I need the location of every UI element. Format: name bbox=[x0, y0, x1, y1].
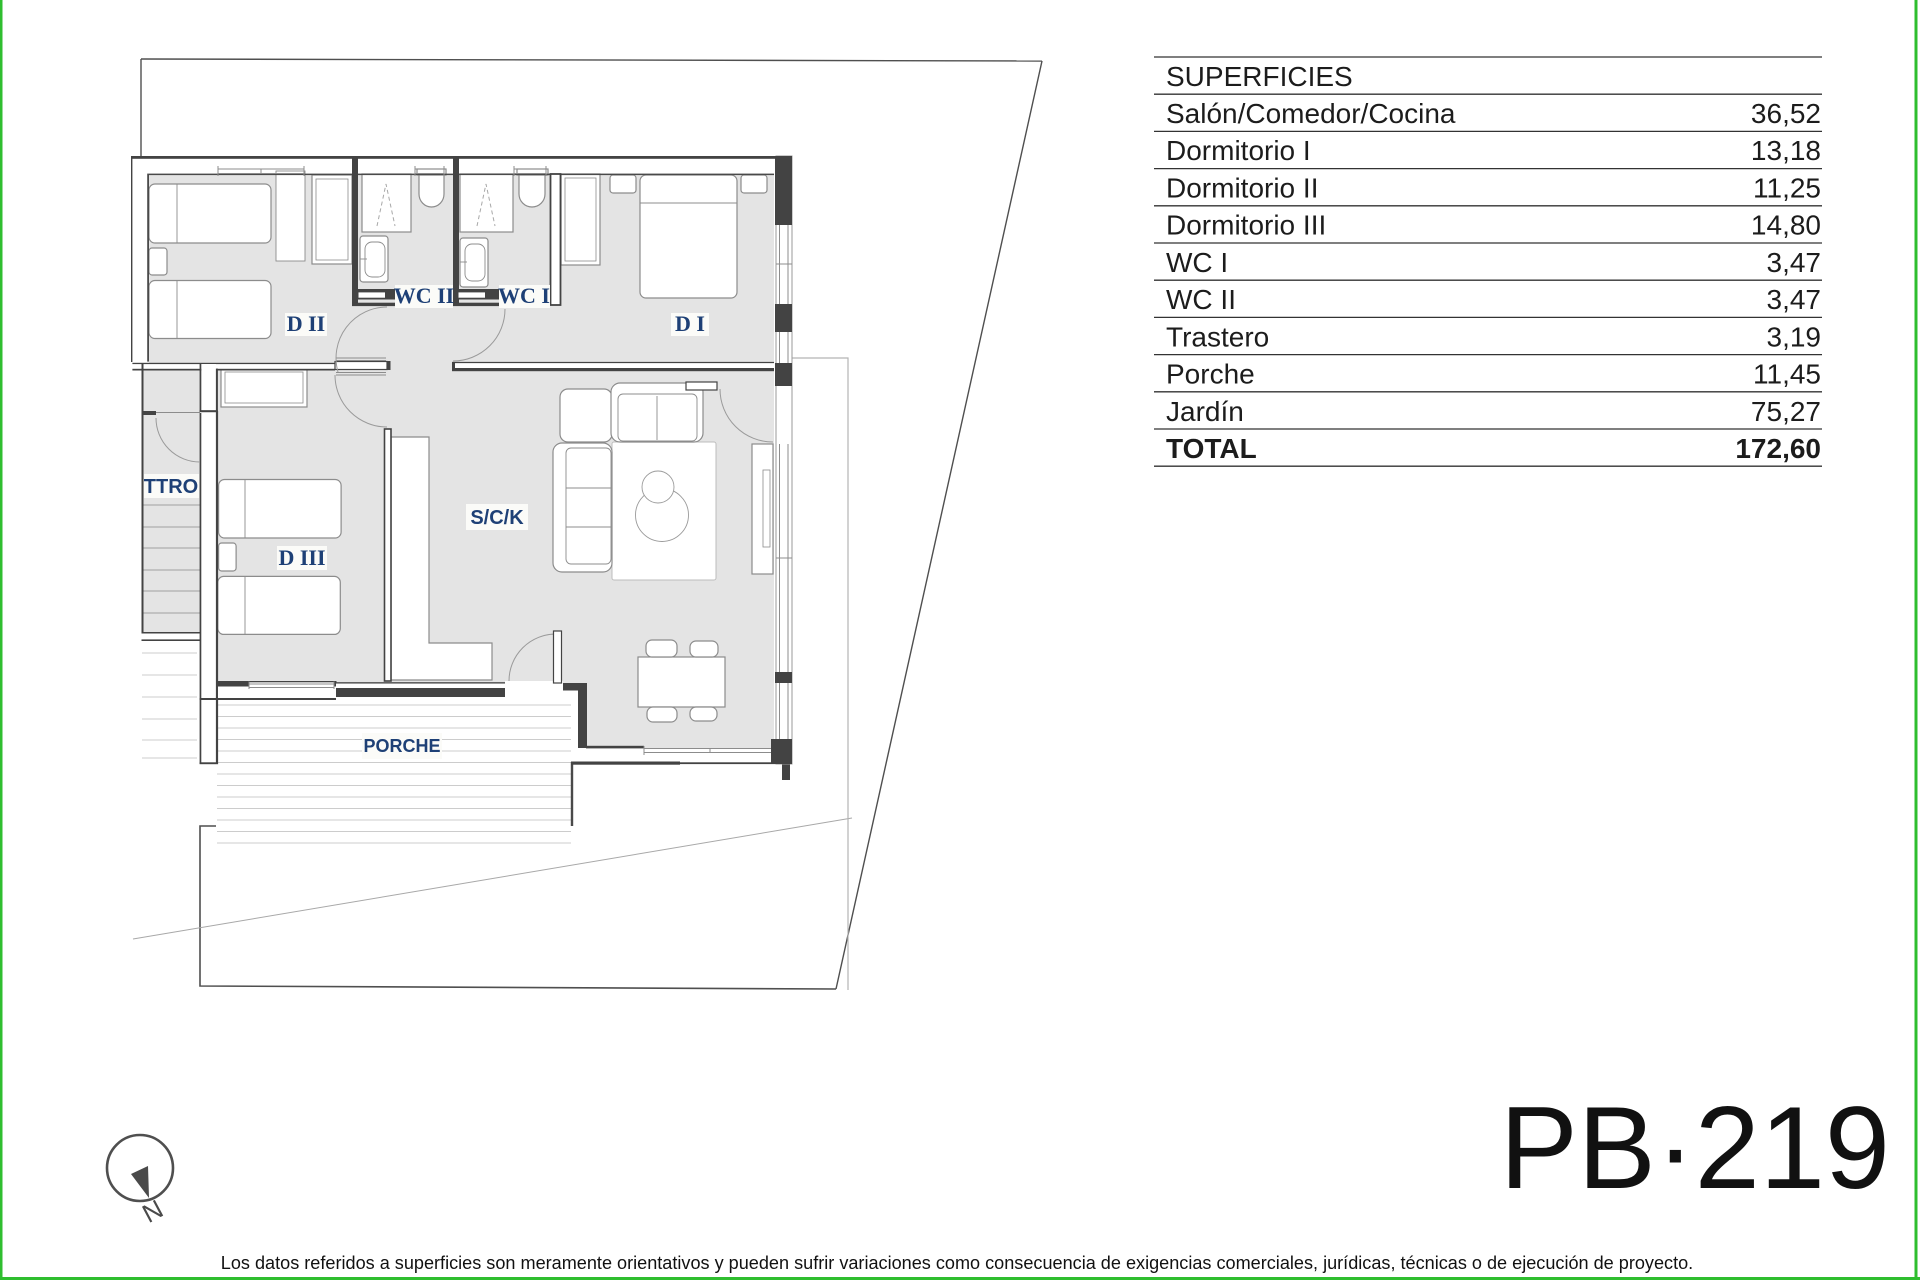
svg-text:S/C/K: S/C/K bbox=[470, 507, 524, 529]
svg-text:D III: D III bbox=[278, 545, 325, 570]
svg-text:TTRO: TTRO bbox=[144, 476, 198, 498]
svg-text:3,47: 3,47 bbox=[1767, 284, 1822, 315]
svg-text:75,27: 75,27 bbox=[1751, 396, 1821, 427]
svg-text:Salón/Comedor/Cocina: Salón/Comedor/Cocina bbox=[1166, 98, 1456, 129]
svg-text:SUPERFICIES: SUPERFICIES bbox=[1166, 61, 1353, 92]
svg-text:Los datos referidos a superfic: Los datos referidos a superficies son me… bbox=[221, 1253, 1693, 1273]
svg-text:11,25: 11,25 bbox=[1753, 173, 1821, 204]
svg-text:Dormitorio II: Dormitorio II bbox=[1166, 173, 1318, 204]
svg-text:172,60: 172,60 bbox=[1735, 433, 1821, 464]
svg-text:3,47: 3,47 bbox=[1767, 247, 1822, 278]
svg-text:D I: D I bbox=[675, 311, 705, 336]
svg-text:Porche: Porche bbox=[1166, 359, 1255, 390]
svg-text:PB·219: PB·219 bbox=[1500, 1082, 1890, 1213]
svg-text:WC II: WC II bbox=[1166, 284, 1236, 315]
svg-text:WC I: WC I bbox=[1166, 247, 1228, 278]
svg-text:PORCHE: PORCHE bbox=[363, 736, 440, 756]
svg-text:Dormitorio I: Dormitorio I bbox=[1166, 135, 1311, 166]
svg-text:Trastero: Trastero bbox=[1166, 322, 1269, 353]
svg-text:36,52: 36,52 bbox=[1751, 98, 1821, 129]
svg-text:WC II: WC II bbox=[394, 283, 455, 308]
svg-text:3,19: 3,19 bbox=[1767, 322, 1822, 353]
svg-text:Dormitorio III: Dormitorio III bbox=[1166, 210, 1326, 241]
svg-text:11,45: 11,45 bbox=[1753, 359, 1821, 390]
svg-text:WC I: WC I bbox=[498, 283, 550, 308]
svg-text:13,18: 13,18 bbox=[1751, 135, 1821, 166]
svg-text:TOTAL: TOTAL bbox=[1166, 433, 1257, 464]
svg-text:14,80: 14,80 bbox=[1751, 210, 1821, 241]
svg-text:D II: D II bbox=[287, 311, 326, 336]
svg-text:Jardín: Jardín bbox=[1166, 396, 1244, 427]
